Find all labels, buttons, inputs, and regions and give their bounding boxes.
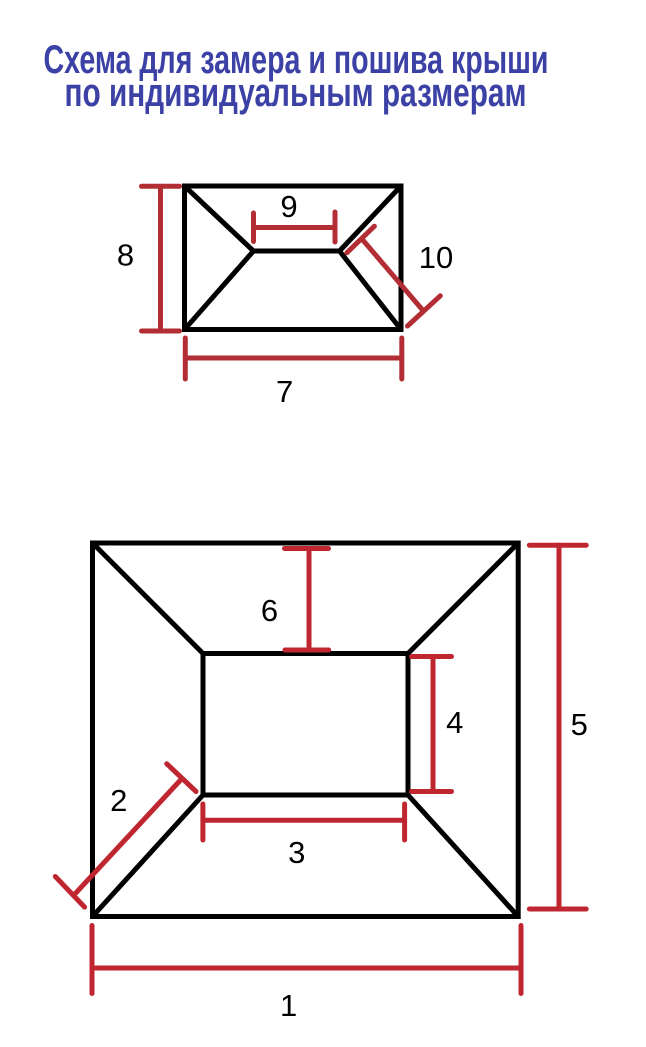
svg-text:9: 9 [280,189,297,224]
svg-text:1: 1 [280,988,297,1023]
svg-text:3: 3 [288,835,305,870]
svg-text:8: 8 [117,238,134,273]
svg-text:5: 5 [571,707,588,742]
svg-text:по индивидуальным размерам: по индивидуальным размерам [65,71,527,115]
svg-text:7: 7 [276,374,293,409]
svg-text:2: 2 [110,783,127,818]
svg-text:6: 6 [261,593,278,628]
svg-text:4: 4 [446,705,463,740]
svg-text:10: 10 [419,240,453,275]
